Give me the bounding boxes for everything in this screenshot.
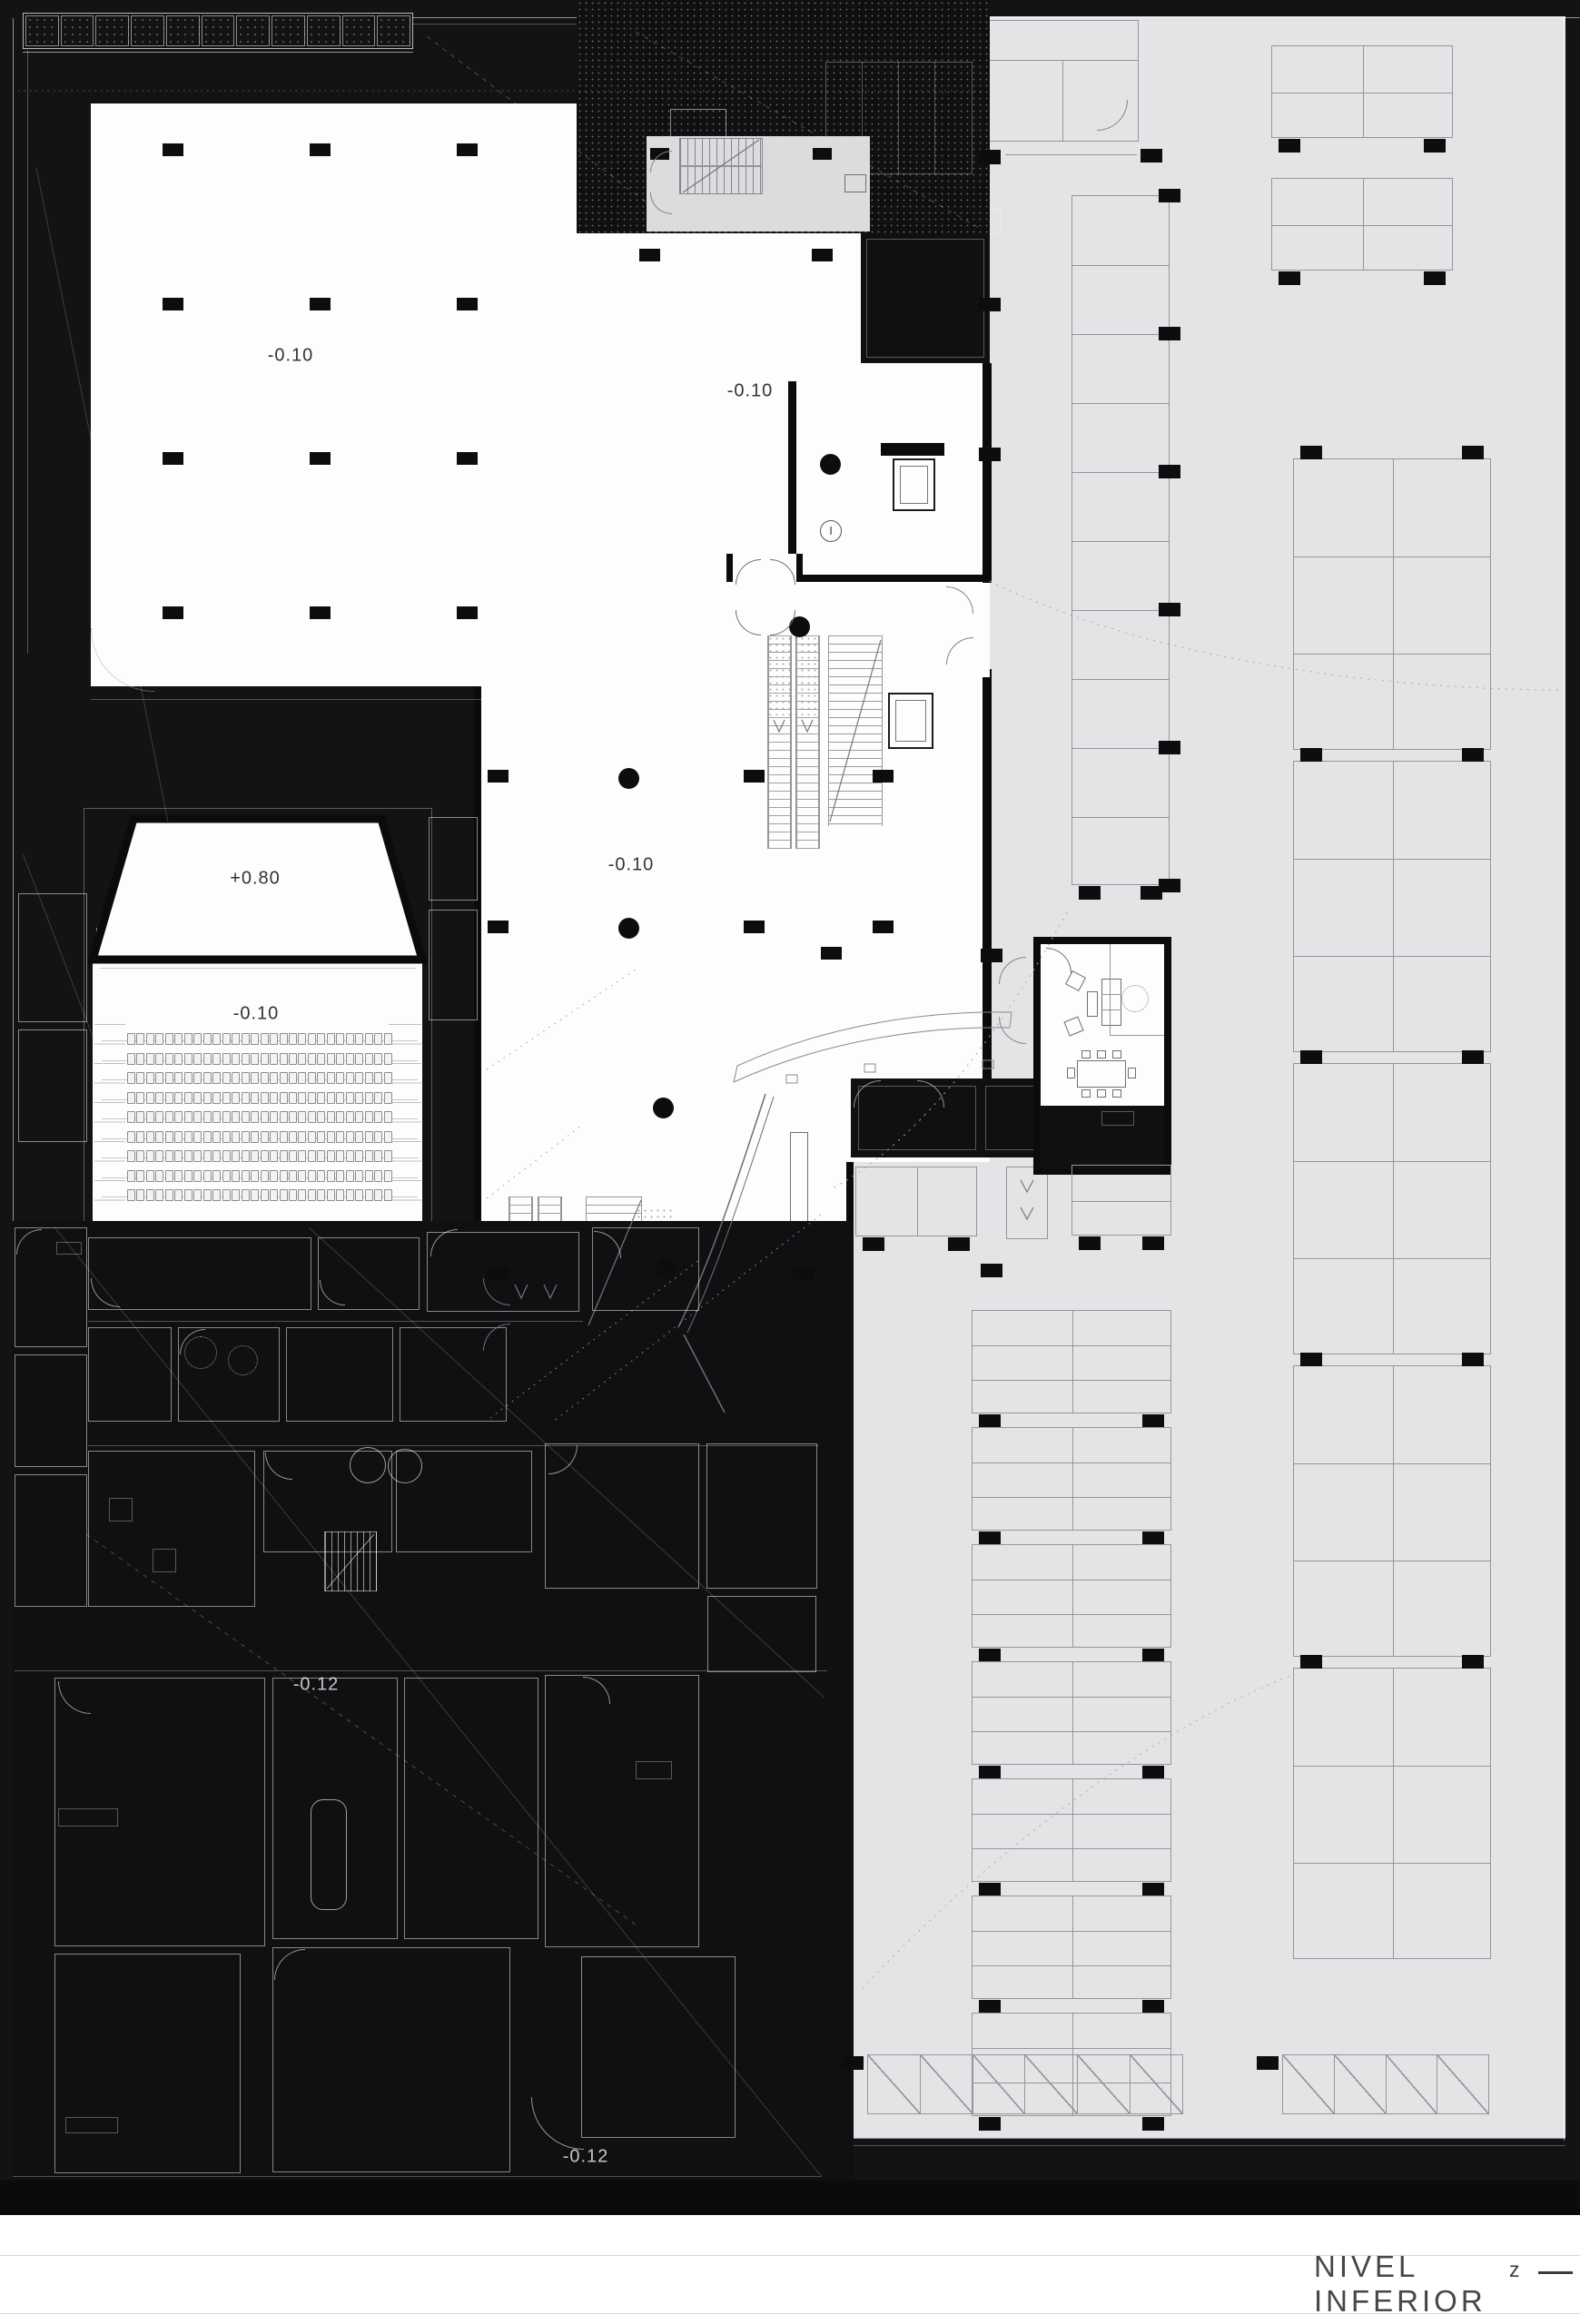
auditorium-seat	[193, 1170, 202, 1182]
auditorium-seat	[327, 1033, 335, 1045]
column	[979, 1531, 1001, 1545]
stall-line	[1393, 459, 1394, 749]
auditorium-seat	[136, 1170, 144, 1182]
parking-stall-group	[1293, 1668, 1491, 1959]
auditorium-seat	[270, 1072, 278, 1084]
service-room	[18, 1029, 87, 1142]
column	[1462, 446, 1484, 459]
column	[488, 770, 509, 783]
auditorium-seat	[222, 1053, 231, 1065]
stall-line	[1294, 1863, 1490, 1864]
stall-line	[1393, 762, 1394, 1051]
ramp-stall	[868, 2055, 921, 2113]
auditorium-seat	[374, 1072, 382, 1084]
auditorium-seat	[336, 1053, 344, 1065]
plan-shape	[1128, 1068, 1136, 1078]
plan-shape	[91, 699, 481, 700]
stall-line	[1072, 1428, 1073, 1530]
planter-cell	[272, 15, 305, 46]
auditorium-seat	[184, 1033, 193, 1045]
column	[744, 770, 765, 783]
stall-line	[1272, 225, 1452, 226]
auditorium-seat	[212, 1131, 221, 1143]
fixture	[65, 2117, 118, 2133]
column	[310, 298, 331, 310]
auditorium-seat	[317, 1092, 325, 1104]
stall-line	[1294, 1561, 1490, 1561]
auditorium-seat	[222, 1033, 231, 1045]
auditorium-seat	[242, 1131, 250, 1143]
auditorium-seat	[336, 1150, 344, 1162]
plan-shape	[1112, 1089, 1121, 1098]
parking-stall-group	[1271, 178, 1453, 271]
column	[1142, 1883, 1164, 1896]
planter-cell	[166, 15, 200, 46]
auditorium-seat	[298, 1111, 306, 1123]
parking-stall-group	[972, 1778, 1171, 1882]
service-room	[272, 1678, 398, 1939]
stall-line	[1294, 1258, 1490, 1259]
auditorium-seat	[203, 1150, 212, 1162]
column	[979, 298, 1001, 311]
auditorium-seat	[365, 1189, 373, 1201]
auditorium-seat	[251, 1170, 259, 1182]
column	[979, 2000, 1001, 2014]
column	[744, 921, 765, 933]
auditorium-seat	[174, 1170, 183, 1182]
auditorium-seat	[289, 1150, 297, 1162]
auditorium-seat	[127, 1131, 135, 1143]
auditorium-seat	[232, 1111, 240, 1123]
column	[1300, 748, 1322, 762]
north-arrow: z	[1509, 2258, 1520, 2282]
service-room	[272, 1947, 510, 2172]
auditorium-seat	[317, 1072, 325, 1084]
auditorium-seat	[174, 1189, 183, 1201]
auditorium-seat	[184, 1131, 193, 1143]
column	[310, 452, 331, 465]
parking-stall-group	[1293, 761, 1491, 1052]
stall-line	[1072, 265, 1169, 266]
stall-line	[973, 1580, 1170, 1581]
auditorium-seat	[232, 1053, 240, 1065]
auditorium-seat	[317, 1189, 325, 1201]
fixture	[56, 1242, 82, 1255]
stall-line	[1363, 46, 1364, 137]
seat-row	[127, 1170, 392, 1182]
auditorium-seat	[270, 1111, 278, 1123]
parking-garage-lower	[854, 1157, 990, 2138]
auditorium-seat	[384, 1033, 392, 1045]
auditorium-seat	[298, 1053, 306, 1065]
auditorium-seat	[289, 1092, 297, 1104]
auditorium-seat	[193, 1072, 202, 1084]
column	[457, 606, 478, 619]
elevator-upper	[893, 458, 935, 511]
auditorium-seat	[232, 1150, 240, 1162]
auditorium-seat	[165, 1131, 173, 1143]
auditorium-seat	[270, 1131, 278, 1143]
auditorium-seat	[155, 1053, 163, 1065]
auditorium-seat	[127, 1111, 135, 1123]
stall-line	[1072, 541, 1169, 542]
planter-cell	[307, 15, 341, 46]
auditorium-seat	[127, 1053, 135, 1065]
auditorium-seat	[280, 1189, 288, 1201]
plan-shape	[27, 50, 28, 654]
auditorium-seat	[365, 1111, 373, 1123]
auditorium-seat	[280, 1131, 288, 1143]
auditorium-seat	[327, 1131, 335, 1143]
auditorium-seat	[165, 1170, 173, 1182]
seat-row	[127, 1131, 392, 1143]
plan-shape	[1101, 1009, 1121, 1010]
plan-shape	[898, 62, 899, 174]
auditorium-seat	[174, 1150, 183, 1162]
column	[488, 921, 509, 933]
column	[979, 1883, 1001, 1896]
plan-shape	[1110, 944, 1111, 1035]
service-room	[706, 1443, 817, 1589]
auditorium-seat	[280, 1111, 288, 1123]
auditorium-seat	[155, 1189, 163, 1201]
auditorium-seat	[232, 1092, 240, 1104]
auditorium-seat	[289, 1033, 297, 1045]
wc-fixture	[1121, 985, 1149, 1012]
auditorium-seat	[146, 1170, 154, 1182]
column	[163, 452, 183, 465]
auditorium-seat	[242, 1170, 250, 1182]
stall-line	[973, 2048, 1170, 2049]
fixture	[58, 1808, 118, 1827]
parking-stall-group	[1293, 1063, 1491, 1354]
auditorium-seat	[280, 1033, 288, 1045]
round-column	[618, 918, 639, 939]
auditorium-seat	[289, 1189, 297, 1201]
plan-shape	[679, 165, 763, 167]
column	[1142, 1649, 1164, 1662]
auditorium-seat	[165, 1111, 173, 1123]
service-room	[88, 1237, 311, 1310]
ramp-stall	[973, 2055, 1026, 2113]
auditorium-seat	[146, 1111, 154, 1123]
plan-shape	[866, 239, 984, 358]
plan-shape	[1062, 60, 1063, 142]
auditorium-seat	[317, 1053, 325, 1065]
level-label-auditorium: -0.10	[233, 1004, 280, 1025]
stall-line	[1393, 1064, 1394, 1354]
auditorium-seat	[232, 1189, 240, 1201]
plan-shape	[23, 52, 413, 53]
plan-shape	[13, 2176, 821, 2177]
auditorium-seat	[136, 1189, 144, 1201]
plan-shape	[854, 2138, 1565, 2139]
stall-line	[1363, 179, 1364, 270]
auditorium-seat	[165, 1150, 173, 1162]
auditorium-seat	[308, 1111, 316, 1123]
stall-line	[973, 1614, 1170, 1615]
auditorium-seat	[280, 1150, 288, 1162]
parking-stall-group	[1071, 1165, 1171, 1236]
parking-stall-group	[1071, 195, 1170, 885]
auditorium-seat	[212, 1033, 221, 1045]
plan-shape	[15, 1670, 827, 1671]
column	[1159, 465, 1180, 478]
north-arrow-line	[1538, 2271, 1573, 2274]
service-room	[15, 1354, 87, 1467]
column	[1300, 1050, 1322, 1064]
auditorium-seat	[242, 1072, 250, 1084]
service-room	[396, 1451, 532, 1552]
plan-shape	[1005, 154, 1137, 155]
auditorium-seat	[384, 1170, 392, 1182]
auditorium-seat	[280, 1072, 288, 1084]
column	[457, 143, 478, 156]
column	[1142, 2117, 1164, 2131]
service-room	[15, 1474, 87, 1607]
ramp-stall	[1283, 2055, 1335, 2113]
auditorium-seat	[289, 1111, 297, 1123]
auditorium-seat	[280, 1092, 288, 1104]
auditorium-seat	[212, 1189, 221, 1201]
auditorium-seat	[136, 1072, 144, 1084]
auditorium-seat	[127, 1072, 135, 1084]
auditorium-seat	[280, 1053, 288, 1065]
planter-cell	[25, 15, 59, 46]
service-room	[54, 1954, 241, 2173]
auditorium-seat	[384, 1053, 392, 1065]
column	[310, 143, 331, 156]
service-room	[286, 1327, 393, 1422]
floor-plan: NIVEL INFERIOR z	[0, 0, 1580, 2324]
lobby	[481, 582, 990, 1162]
ramp-stall	[1078, 2055, 1131, 2113]
auditorium-seat	[336, 1131, 344, 1143]
plan-shape	[1101, 994, 1121, 995]
auditorium-seat	[298, 1170, 306, 1182]
auditorium-seat	[384, 1072, 392, 1084]
lobby-parking-wall	[983, 363, 992, 583]
auditorium-seat	[136, 1111, 144, 1123]
auditorium-seat	[336, 1189, 344, 1201]
auditorium-seat	[270, 1170, 278, 1182]
auditorium-seat	[308, 1170, 316, 1182]
auditorium-seat	[146, 1092, 154, 1104]
auditorium-seat	[251, 1053, 259, 1065]
planter-cell	[61, 15, 94, 46]
column	[1159, 879, 1180, 892]
auditorium-seat	[174, 1033, 183, 1045]
auditorium-seat	[127, 1092, 135, 1104]
stall-line	[1072, 1545, 1073, 1647]
auditorium-seat	[355, 1150, 363, 1162]
auditorium-seat	[184, 1189, 193, 1201]
auditorium-seat	[222, 1170, 231, 1182]
auditorium-seat	[317, 1033, 325, 1045]
auditorium-seat	[336, 1033, 344, 1045]
auditorium-seat	[384, 1131, 392, 1143]
auditorium-seat	[155, 1111, 163, 1123]
auditorium-seat	[374, 1053, 382, 1065]
column	[1279, 139, 1300, 153]
auditorium-seat	[346, 1092, 354, 1104]
auditorium-seat	[346, 1053, 354, 1065]
stall-line	[973, 1497, 1170, 1498]
auditorium-seat	[242, 1033, 250, 1045]
seat-row	[127, 1092, 392, 1104]
auditorium-seat	[184, 1111, 193, 1123]
ramp-stalls	[867, 2054, 1183, 2114]
auditorium-seat	[232, 1131, 240, 1143]
planter-cell	[131, 15, 164, 46]
auditorium-seat	[336, 1092, 344, 1104]
auditorium-seat	[336, 1072, 344, 1084]
auditorium-seat	[384, 1150, 392, 1162]
auditorium-seat	[289, 1170, 297, 1182]
site-boundary-right	[1564, 16, 1565, 2141]
ramp-stall	[1025, 2055, 1078, 2113]
stall-line	[1072, 334, 1169, 335]
column	[981, 1264, 1002, 1277]
auditorium-seat	[355, 1053, 363, 1065]
stall-line	[1072, 679, 1169, 680]
auditorium-seat	[261, 1170, 269, 1182]
auditorium-seat	[261, 1189, 269, 1201]
auditorium-seat	[203, 1131, 212, 1143]
auditorium-seat	[155, 1072, 163, 1084]
round-column	[653, 1098, 674, 1118]
column	[1300, 446, 1322, 459]
plan-shape	[1097, 1089, 1106, 1098]
auditorium-seat	[127, 1150, 135, 1162]
parking-stall-group	[972, 1427, 1171, 1531]
auditorium-seat	[374, 1170, 382, 1182]
plan-shape	[900, 466, 928, 504]
auditorium-seat	[212, 1111, 221, 1123]
auditorium-seat	[365, 1092, 373, 1104]
column	[1142, 1236, 1164, 1250]
auditorium-seat	[212, 1092, 221, 1104]
column	[457, 298, 478, 310]
auditorium-seat	[327, 1189, 335, 1201]
auditorium-seat	[203, 1092, 212, 1104]
auditorium-seat	[261, 1131, 269, 1143]
planter-cell	[236, 15, 270, 46]
auditorium-seat	[203, 1072, 212, 1084]
stall-line	[1072, 472, 1169, 473]
column	[981, 949, 1002, 962]
column	[821, 947, 842, 960]
seat-row	[127, 1033, 392, 1045]
plan-shape	[983, 677, 992, 1078]
auditorium-seat	[251, 1150, 259, 1162]
auditorium-seat	[127, 1170, 135, 1182]
ramp-stall	[1335, 2055, 1387, 2113]
plan-shape	[1081, 1050, 1091, 1059]
auditorium-seat	[308, 1053, 316, 1065]
level-label-lobby: -0.10	[608, 855, 655, 876]
stall-line	[1072, 1311, 1073, 1413]
auditorium-seat	[232, 1033, 240, 1045]
auditorium-seat	[384, 1092, 392, 1104]
column	[1142, 2000, 1164, 2014]
auditorium-seat	[146, 1033, 154, 1045]
parking-stall-group	[1293, 458, 1491, 750]
auditorium-seat	[308, 1092, 316, 1104]
auditorium-seat	[355, 1092, 363, 1104]
parking-stall-group	[1293, 1365, 1491, 1657]
auditorium-seat	[308, 1072, 316, 1084]
auditorium-seat	[298, 1150, 306, 1162]
auditorium-seat	[289, 1053, 297, 1065]
auditorium-seat	[222, 1092, 231, 1104]
ramp-stall	[1131, 2055, 1183, 2113]
column	[863, 1237, 884, 1251]
plan-shape	[1112, 1050, 1121, 1059]
column	[1159, 189, 1180, 202]
stall-line	[1072, 1896, 1073, 1998]
auditorium-seat	[374, 1150, 382, 1162]
stall-line	[1072, 610, 1169, 611]
column	[1424, 271, 1446, 285]
auditorium-seat	[174, 1053, 183, 1065]
auditorium-seat	[242, 1092, 250, 1104]
service-room	[88, 1451, 255, 1607]
column	[1079, 1236, 1101, 1250]
auditorium-seat	[242, 1053, 250, 1065]
stall-line	[973, 1931, 1170, 1932]
auditorium-seat	[298, 1092, 306, 1104]
auditorium-seat	[155, 1150, 163, 1162]
column	[1142, 1531, 1164, 1545]
auditorium-seat	[346, 1033, 354, 1045]
column	[979, 1766, 1001, 1779]
page-title: NIVEL INFERIOR	[1314, 2250, 1580, 2319]
plan-shape	[796, 554, 803, 583]
auditorium-seat	[355, 1170, 363, 1182]
column	[812, 249, 833, 261]
auditorium-seat	[165, 1189, 173, 1201]
auditorium-seat	[336, 1170, 344, 1182]
auditorium-seat	[289, 1131, 297, 1143]
auditorium-seat	[374, 1131, 382, 1143]
stall-line	[1272, 93, 1452, 94]
auditorium-seat	[365, 1131, 373, 1143]
auditorium-seat	[346, 1131, 354, 1143]
plan-shape	[813, 148, 832, 160]
auditorium-seat	[317, 1170, 325, 1182]
auditorium-seat	[317, 1150, 325, 1162]
stall-line	[1294, 1463, 1490, 1464]
auditorium-seat	[165, 1053, 173, 1065]
auditorium-seat	[251, 1189, 259, 1201]
column	[1462, 1655, 1484, 1669]
auditorium-seat	[327, 1092, 335, 1104]
auditorium-seat	[327, 1053, 335, 1065]
auditorium-seat	[355, 1072, 363, 1084]
stall-line	[1072, 748, 1169, 749]
auditorium-seat	[174, 1131, 183, 1143]
auditorium-seat	[261, 1111, 269, 1123]
auditorium-seat	[298, 1131, 306, 1143]
auditorium-seat	[146, 1072, 154, 1084]
ramp-stalls	[1282, 2054, 1489, 2114]
auditorium-seat	[136, 1131, 144, 1143]
auditorium-seat	[136, 1033, 144, 1045]
auditorium-seat	[155, 1131, 163, 1143]
auditorium-seat	[165, 1072, 173, 1084]
planter-cell	[377, 15, 410, 46]
